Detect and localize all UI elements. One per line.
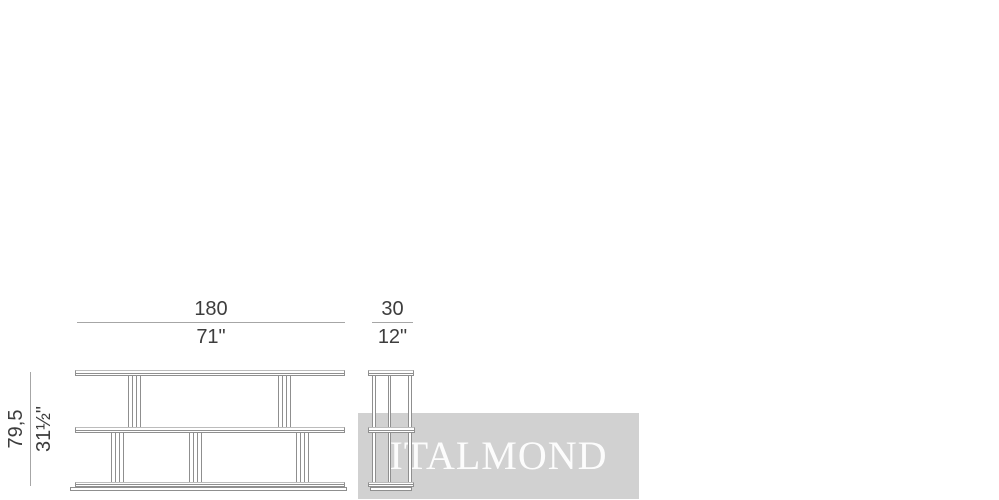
front-width-dimension-line [77,322,345,323]
support-leg [286,376,291,427]
support-leg [111,433,116,482]
side-top-shelf [368,370,414,376]
front-lower-support-left [111,433,124,482]
front-upper-support-left [128,376,141,427]
front-middle-shelf [75,427,345,433]
side-depth-dimension-line [372,322,413,323]
front-top-shelf [75,370,345,376]
support-leg [197,433,202,482]
watermark-text: ITALMOND [389,436,607,476]
side-depth-label-imperial: 12" [372,327,413,347]
front-width-label-imperial: 71" [77,327,345,347]
side-depth-label-metric: 30 [372,299,413,319]
height-label-metric: 79,5 [6,389,26,469]
front-width-label-metric: 180 [77,299,345,319]
front-lower-support-right [296,433,309,482]
front-lower-support-middle [189,433,202,482]
support-leg [136,376,141,427]
height-label-imperial: 31½" [34,389,54,469]
support-leg [119,433,124,482]
support-leg [189,433,194,482]
drawing-canvas: ITALMOND 180 71" [0,0,999,500]
side-base-plinth [370,487,412,491]
support-leg [278,376,283,427]
support-leg [296,433,301,482]
front-upper-support-right [278,376,291,427]
support-leg [128,376,133,427]
support-leg [304,433,309,482]
front-base-plinth [70,487,347,491]
height-dimension-line [30,372,31,486]
side-middle-shelf [368,427,415,433]
